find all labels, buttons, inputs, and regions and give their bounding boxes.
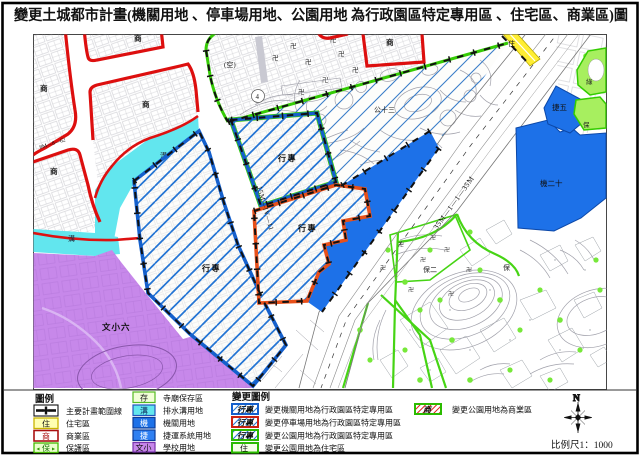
svg-text:卍: 卍 <box>448 291 454 298</box>
svg-text:商: 商 <box>50 166 58 176</box>
svg-text:▸: ▸ <box>52 447 55 453</box>
svg-text:文小: 文小 <box>136 443 152 453</box>
svg-text:排水溝用地: 排水溝用地 <box>163 406 203 416</box>
svg-text:◂: ◂ <box>37 447 40 453</box>
svg-text:變更土城都市計畫(機關用地 、停車場用地、公園用地 為行政園: 變更土城都市計畫(機關用地 、停車場用地、公園用地 為行政園區特定專用區 、住宅… <box>14 6 628 24</box>
svg-text:捷五: 捷五 <box>552 102 567 112</box>
svg-text:主要計畫範圍線: 主要計畫範圍線 <box>66 406 122 416</box>
svg-text:保護區: 保護區 <box>66 443 90 453</box>
svg-text:商: 商 <box>134 33 142 43</box>
svg-text:學校用地: 學校用地 <box>163 443 195 453</box>
svg-text:捷運系統用地: 捷運系統用地 <box>163 431 211 441</box>
svg-text:商: 商 <box>40 83 48 93</box>
svg-text:卍: 卍 <box>290 42 297 50</box>
svg-text:圖例: 圖例 <box>35 393 54 405</box>
svg-text:行專: 行專 <box>237 406 255 415</box>
svg-text:綠: 綠 <box>586 77 593 86</box>
svg-text:變更公園用地為住宅區: 變更公園用地為住宅區 <box>265 443 345 453</box>
svg-text:機關用地: 機關用地 <box>163 418 195 428</box>
svg-text:卍: 卍 <box>408 287 414 294</box>
svg-text:卍: 卍 <box>305 58 312 66</box>
svg-text:溝: 溝 <box>140 406 148 416</box>
svg-text:行專: 行專 <box>237 419 255 428</box>
svg-text:卍: 卍 <box>466 267 472 274</box>
svg-text:溝: 溝 <box>68 234 75 243</box>
svg-text:卍: 卍 <box>352 66 359 74</box>
svg-text:商: 商 <box>42 431 50 441</box>
svg-text:住: 住 <box>240 443 248 453</box>
svg-text:保: 保 <box>42 443 50 453</box>
svg-text:卍: 卍 <box>444 247 450 254</box>
svg-text:行專: 行專 <box>277 153 297 163</box>
svg-text:比例尺1：1000: 比例尺1：1000 <box>551 439 613 451</box>
svg-text:卍: 卍 <box>420 257 426 264</box>
svg-text:機: 機 <box>140 418 148 428</box>
svg-text:變更圖例: 變更圖例 <box>231 391 270 403</box>
svg-text:行專: 行專 <box>297 223 317 233</box>
svg-text:卍: 卍 <box>272 54 279 62</box>
svg-text:N: N <box>573 394 580 404</box>
svg-text:保: 保 <box>503 263 510 272</box>
svg-text:行專: 行專 <box>237 432 255 441</box>
svg-text:(空): (空) <box>224 60 236 69</box>
svg-text:變更公園用地為行政園區特定專用區: 變更公園用地為行政園區特定專用區 <box>265 431 393 441</box>
svg-text:寺廟保存區: 寺廟保存區 <box>163 393 203 403</box>
svg-text:公十三: 公十三 <box>374 105 395 114</box>
svg-text:保二: 保二 <box>423 265 437 274</box>
svg-text:住: 住 <box>42 419 50 429</box>
svg-text:文小六: 文小六 <box>102 322 131 332</box>
svg-text:變更機關用地為行政園區特定專用區: 變更機關用地為行政園區特定專用區 <box>265 405 393 415</box>
svg-text:商: 商 <box>386 37 394 47</box>
svg-text:商: 商 <box>142 99 150 109</box>
svg-text:存: 存 <box>140 393 148 403</box>
svg-text:變更公園用地為商業區: 變更公園用地為商業區 <box>452 405 532 415</box>
svg-text:4: 4 <box>256 93 260 101</box>
svg-text:機二十: 機二十 <box>540 178 563 188</box>
svg-text:保: 保 <box>583 120 590 129</box>
svg-text:行專: 行專 <box>201 263 221 273</box>
svg-text:住宅區: 住宅區 <box>66 419 90 429</box>
svg-text:變更停車場用地為行政園區特定專用區: 變更停車場用地為行政園區特定專用區 <box>265 418 401 428</box>
svg-text:卍: 卍 <box>298 88 305 96</box>
svg-text:捷: 捷 <box>140 431 148 441</box>
svg-text:商業區: 商業區 <box>66 431 90 441</box>
svg-text:卍: 卍 <box>338 50 345 58</box>
